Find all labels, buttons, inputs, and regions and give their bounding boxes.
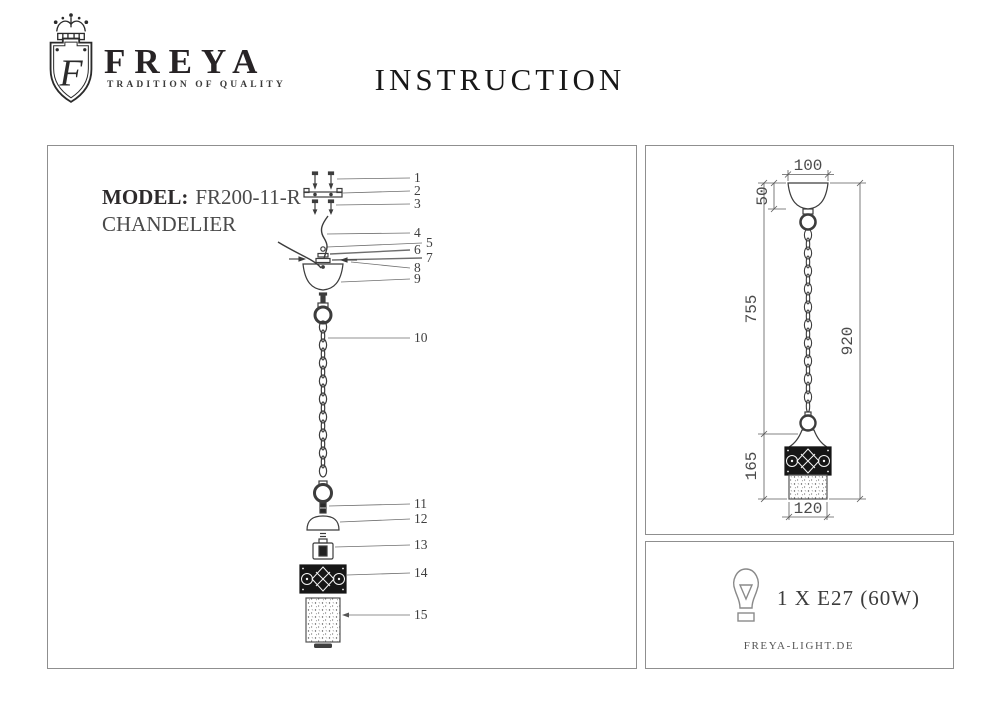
part-label-13: 13 [414, 537, 428, 552]
mounting-bracket [304, 189, 342, 198]
wire-connectors [316, 247, 330, 263]
chain [319, 321, 326, 477]
part-label-5: 5 [426, 235, 433, 250]
dim-bottom-ring [801, 412, 816, 431]
part-label-11: 11 [414, 496, 427, 511]
dim-shade-height: 165 [743, 452, 761, 481]
glass-shade [306, 598, 340, 648]
instruction-sheet: F FREYA TRADITION OF QUALITY INSTRUCTION… [0, 0, 1000, 706]
dimensions-panel: 100 50 755 165 920 120 [645, 145, 954, 535]
part-label-10: 10 [414, 330, 428, 345]
cap-dome [307, 516, 339, 537]
part-label-3: 3 [414, 196, 421, 211]
dim-shade-width: 120 [794, 500, 823, 518]
part-label-15: 15 [414, 607, 428, 622]
canopy-screw [320, 293, 327, 302]
dim-canopy [788, 183, 828, 214]
part-label-9: 9 [414, 271, 421, 286]
canopy [303, 264, 343, 290]
part-label-4: 4 [414, 225, 421, 240]
part-label-6: 6 [414, 242, 421, 257]
mounting-screws-lower [313, 200, 334, 214]
website: FREYA-LIGHT.DE [704, 640, 894, 652]
leader-lines [327, 178, 422, 618]
dim-canopy-height: 50 [754, 186, 772, 205]
dim-glass-shade [789, 475, 827, 499]
part-label-12: 12 [414, 511, 428, 526]
part-label-14: 14 [414, 565, 428, 580]
dim-decorative-band [785, 447, 831, 475]
dim-chain [804, 229, 811, 412]
dim-flare [789, 430, 827, 447]
top-hook-ring [315, 303, 331, 323]
dim-top-ring [801, 215, 816, 230]
dimension-drawing: 100 50 755 165 920 120 [646, 146, 951, 532]
connector-stud [320, 503, 326, 513]
bottom-hook-ring [315, 481, 332, 502]
dim-total-height: 920 [839, 327, 857, 356]
dim-canopy-width: 100 [794, 157, 823, 175]
part-label-7: 7 [426, 250, 433, 265]
spec-panel: 1 X E27 (60W) FREYA-LIGHT.DE [645, 541, 954, 669]
crown-icon [54, 13, 88, 39]
lamp-socket [313, 539, 333, 559]
part-labels: 1 2 3 4 5 6 7 8 9 10 11 12 13 14 15 [414, 170, 433, 622]
exploded-diagram: 1 2 3 4 5 6 7 8 9 10 11 12 13 14 15 [48, 146, 634, 666]
decorative-band [300, 565, 346, 593]
slide-arrows [289, 257, 357, 262]
dim-chain-length: 755 [743, 295, 761, 324]
page-title: INSTRUCTION [0, 62, 1000, 98]
bulb-icon [726, 566, 766, 644]
mounting-screws-top [313, 172, 334, 188]
bulb-spec: 1 X E27 (60W) [777, 586, 920, 611]
assembly-panel: MODEL:FR200-11-R CHANDELIER [47, 145, 637, 669]
